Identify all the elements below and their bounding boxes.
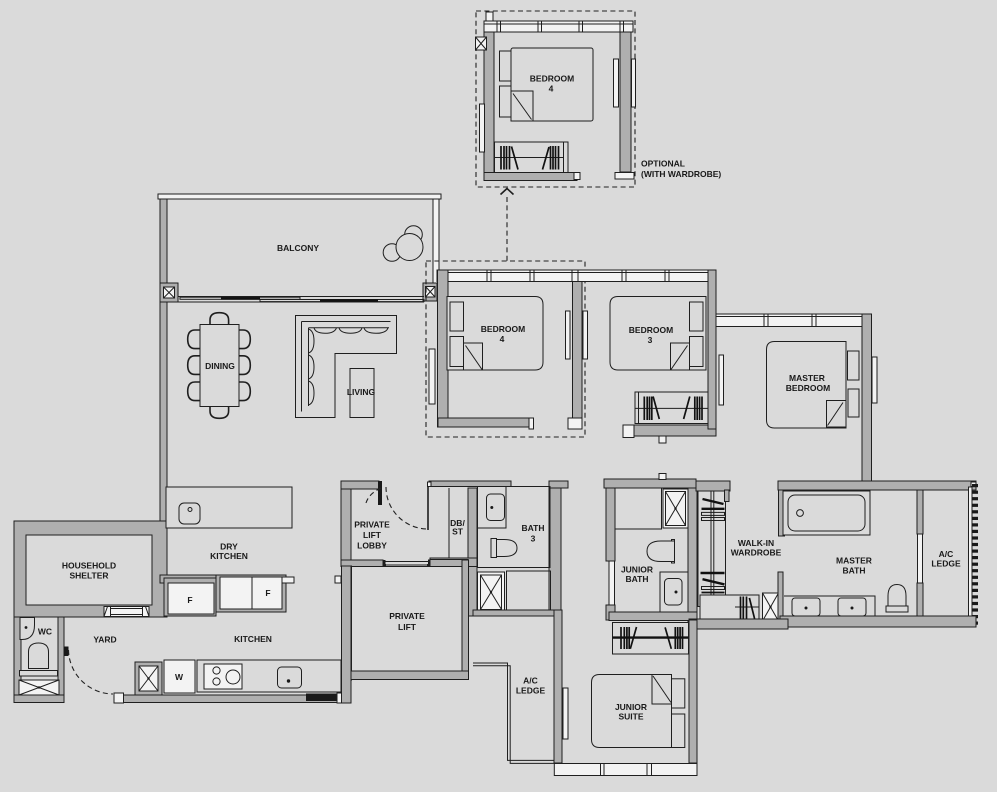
svg-text:LEDGE: LEDGE xyxy=(931,559,961,569)
svg-text:F: F xyxy=(187,595,192,605)
svg-text:WARDROBE: WARDROBE xyxy=(731,548,782,558)
svg-text:KITCHEN: KITCHEN xyxy=(234,634,272,644)
svg-text:PRIVATE: PRIVATE xyxy=(389,611,425,621)
svg-text:4: 4 xyxy=(549,84,554,94)
svg-text:F: F xyxy=(265,588,270,598)
svg-text:A/C: A/C xyxy=(523,676,538,686)
svg-text:LIFT: LIFT xyxy=(398,622,417,632)
svg-text:BEDROOM: BEDROOM xyxy=(786,383,830,393)
svg-text:DINING: DINING xyxy=(205,361,235,371)
svg-text:3: 3 xyxy=(648,335,653,345)
svg-text:YARD: YARD xyxy=(93,635,116,645)
svg-text:ST: ST xyxy=(452,527,464,537)
svg-text:A/C: A/C xyxy=(939,549,954,559)
svg-text:BEDROOM: BEDROOM xyxy=(530,74,574,84)
svg-text:MASTER: MASTER xyxy=(836,556,872,566)
svg-text:JUNIOR: JUNIOR xyxy=(615,702,647,712)
svg-text:SUITE: SUITE xyxy=(618,712,643,722)
svg-text:LOBBY: LOBBY xyxy=(357,541,387,551)
svg-text:JUNIOR: JUNIOR xyxy=(621,565,653,575)
svg-text:(WITH WARDROBE): (WITH WARDROBE) xyxy=(641,169,721,179)
svg-text:SHELTER: SHELTER xyxy=(69,571,108,581)
svg-text:LEDGE: LEDGE xyxy=(516,686,546,696)
svg-text:OPTIONAL: OPTIONAL xyxy=(641,159,685,169)
svg-text:4: 4 xyxy=(500,334,505,344)
svg-text:WALK-IN: WALK-IN xyxy=(738,538,774,548)
svg-text:DRY: DRY xyxy=(220,542,238,552)
svg-text:HOUSEHOLD: HOUSEHOLD xyxy=(62,561,116,571)
svg-text:LIVING: LIVING xyxy=(347,387,376,397)
svg-text:BEDROOM: BEDROOM xyxy=(629,325,673,335)
svg-text:PRIVATE: PRIVATE xyxy=(354,520,390,530)
svg-text:3: 3 xyxy=(531,534,536,544)
svg-text:KITCHEN: KITCHEN xyxy=(210,551,248,561)
svg-text:BEDROOM: BEDROOM xyxy=(481,324,525,334)
svg-text:MASTER: MASTER xyxy=(789,373,825,383)
svg-text:BATH: BATH xyxy=(843,566,866,576)
svg-text:LIFT: LIFT xyxy=(363,530,382,540)
svg-text:BATH: BATH xyxy=(522,523,545,533)
svg-text:W: W xyxy=(175,672,184,682)
svg-text:BATH: BATH xyxy=(626,574,649,584)
svg-text:WC: WC xyxy=(38,627,52,637)
svg-text:BALCONY: BALCONY xyxy=(277,243,319,253)
